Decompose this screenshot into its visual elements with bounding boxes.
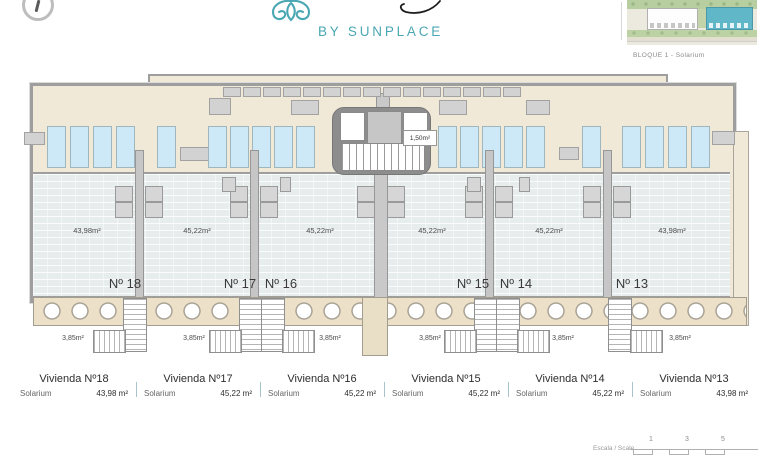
legend-entry: Vivienda Nº18 Solarium43,98 m²: [12, 373, 136, 398]
site-map-dimension-line: [621, 2, 622, 40]
stair-landing-18: [93, 330, 126, 353]
logo-script-flourish: [396, 0, 442, 16]
legend-label: Solarium: [144, 389, 176, 398]
legend-title: Vivienda Nº15: [392, 373, 500, 385]
walkway-pier: [362, 297, 388, 356]
site-map-caption: BLOQUE 1 - Solarium: [633, 52, 705, 59]
unit-area-label: 45,22m²: [418, 226, 446, 235]
access-stair-18: [123, 298, 147, 352]
site-map-landscape-bottom: [627, 30, 757, 37]
access-stair-13: [608, 298, 632, 352]
stair-landing-17: [209, 330, 242, 353]
unit-number-label: Nº 15: [457, 276, 489, 291]
unit-number-label: Nº 18: [109, 276, 141, 291]
elevator-shaft: [367, 111, 402, 146]
core-room-left: [340, 112, 365, 141]
stair-landing-14: [517, 330, 550, 353]
site-location-map: [627, 0, 757, 45]
legend-title: Vivienda Nº18: [20, 373, 128, 385]
unit-area-label: 43,98m²: [73, 226, 101, 235]
scale-tick: 1: [649, 436, 653, 443]
unit-number-label: Nº 16: [265, 276, 297, 291]
scale-bar-segment: [669, 449, 689, 455]
core-area-label: 1,50m²: [403, 130, 437, 146]
unit-area-label: 45,22m²: [183, 226, 211, 235]
scale-tick: 3: [685, 436, 689, 443]
scale-bar-label: Escala / Scale: [593, 445, 634, 452]
scale-bar-segment: [633, 449, 653, 455]
legend-label: Solarium: [392, 389, 424, 398]
access-stair-15: [474, 298, 498, 352]
legend-value: 45,22 m²: [592, 389, 624, 398]
floor-plan-sheet: { "header": { "logo_text": "BY SUNPLACE"…: [0, 0, 770, 460]
stair-landing-15: [444, 330, 477, 353]
legend-value: 45,22 m²: [468, 389, 500, 398]
legend-label: Solarium: [516, 389, 548, 398]
legend-value: 43,98 m²: [716, 389, 748, 398]
site-map-road: [627, 37, 757, 42]
stair-area-label: 3,85m²: [419, 335, 441, 342]
sunplace-logo-icon: [266, 0, 316, 27]
stair-area-label: 3,85m²: [319, 335, 341, 342]
stair-landing-16: [282, 330, 315, 353]
legend-value: 43,98 m²: [96, 389, 128, 398]
central-partition-wall: [374, 173, 388, 299]
legend-title: Vivienda Nº17: [144, 373, 252, 385]
scale-tick: 5: [721, 436, 725, 443]
legend-label: Solarium: [640, 389, 672, 398]
legend: Vivienda Nº18 Solarium43,98 m² Vivienda …: [12, 373, 756, 398]
unit-area-label: 43,98m²: [658, 226, 686, 235]
scale-bar-segment: [705, 449, 725, 455]
legend-value: 45,22 m²: [220, 389, 252, 398]
unit-number-label: Nº 17: [224, 276, 256, 291]
access-stair-17: [239, 298, 263, 352]
legend-title: Vivienda Nº16: [268, 373, 376, 385]
unit-number-label: Nº 13: [616, 276, 648, 291]
stair-landing-13: [630, 330, 663, 353]
legend-entry: Vivienda Nº15 Solarium45,22 m²: [384, 373, 508, 398]
unit-area-label: 45,22m²: [306, 226, 334, 235]
legend-entry: Vivienda Nº14 Solarium45,22 m²: [508, 373, 632, 398]
site-map-block-2: [647, 8, 698, 30]
stair-area-label: 3,85m²: [552, 335, 574, 342]
legend-label: Solarium: [268, 389, 300, 398]
unit-number-label: Nº 14: [500, 276, 532, 291]
site-map-block-1-highlighted: [706, 7, 753, 30]
legend-title: Vivienda Nº14: [516, 373, 624, 385]
legend-value: 45,22 m²: [344, 389, 376, 398]
north-arrow-icon: [22, 0, 54, 21]
legend-label: Solarium: [20, 389, 52, 398]
core-stair-flight: [341, 143, 425, 171]
legend-entry: Vivienda Nº16 Solarium45,22 m²: [260, 373, 384, 398]
legend-entry: Vivienda Nº13 Solarium43,98 m²: [632, 373, 756, 398]
stair-area-label: 3,85m²: [62, 335, 84, 342]
legend-title: Vivienda Nº13: [640, 373, 748, 385]
legend-entry: Vivienda Nº17 Solarium45,22 m²: [136, 373, 260, 398]
stair-area-label: 3,85m²: [183, 335, 205, 342]
logo-byline: BY SUNPLACE: [318, 24, 443, 39]
scale-bar: 1 3 5: [630, 432, 760, 456]
unit-area-label: 45,22m²: [535, 226, 563, 235]
stair-area-label: 3,85m²: [669, 335, 691, 342]
